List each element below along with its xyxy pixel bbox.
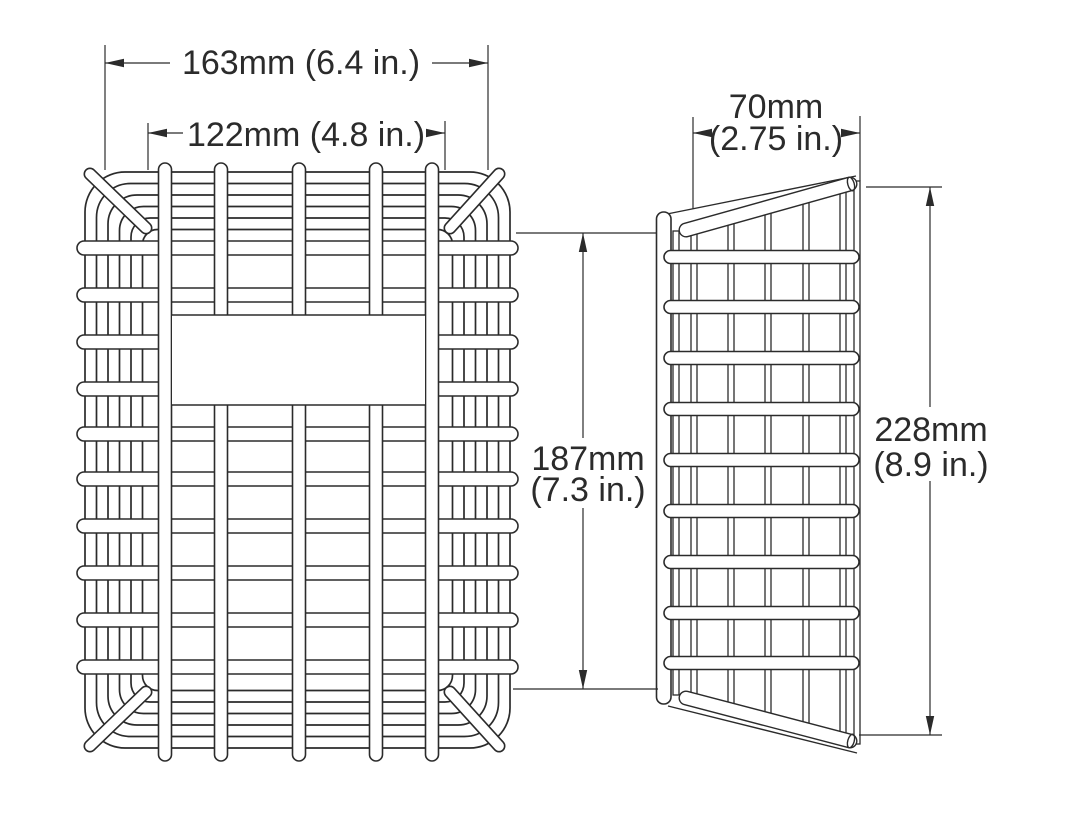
dimension-label-inner-width: 122mm (4.8 in.) [187,116,425,154]
vertical-wire [426,163,439,761]
arrowhead-down [926,716,934,735]
horizontal-wire [664,505,859,518]
drawing-canvas: 163mm (6.4 in.) 122mm (4.8 in.) 187mm (7… [0,0,1080,827]
horizontal-wire [664,607,859,620]
arrowhead-right [426,129,445,137]
corner-brace-fill [450,692,499,746]
vertical-wire [159,163,172,761]
vertical-wire [293,163,306,761]
arrowhead-left [148,129,167,137]
label-plate [172,315,425,405]
vertical-wire [215,163,228,761]
horizontal-wire [664,556,859,569]
horizontal-wire [664,352,859,365]
arrowhead-up [926,187,934,206]
dimension-label-outer-width: 163mm (6.4 in.) [182,44,420,82]
arrowhead-up [579,233,587,252]
dimension-side-height: 228mm (8.9 in.) [859,187,999,735]
dimension-label-side-height-inch: (8.9 in.) [873,446,988,484]
dimension-label-depth-inch: (2.75 in.) [709,120,843,158]
corner-brace-fill [90,174,146,228]
arrowhead-down [579,670,587,689]
horizontal-wire [664,403,859,416]
dimension-label-front-height-inch: (7.3 in.) [530,471,645,509]
corner-brace-fill [450,174,499,228]
corner-brace-fill [90,692,146,746]
horizontal-wire [664,301,859,314]
dimension-front-height: 187mm (7.3 in.) [513,233,658,689]
dimension-label-side-height-mm: 228mm [874,411,987,449]
arrowhead-left [105,59,124,67]
vertical-wire [370,163,383,761]
horizontal-wire [664,251,859,264]
technical-drawing: 163mm (6.4 in.) 122mm (4.8 in.) 187mm (7… [0,0,1080,827]
side-view [657,176,861,753]
horizontal-wire [664,454,859,467]
side-horizontal-wires [664,251,859,670]
horizontal-wire [664,657,859,670]
front-view [77,163,518,761]
dimension-inner-width: 122mm (4.8 in.) [148,114,445,170]
arrowhead-right [469,59,488,67]
